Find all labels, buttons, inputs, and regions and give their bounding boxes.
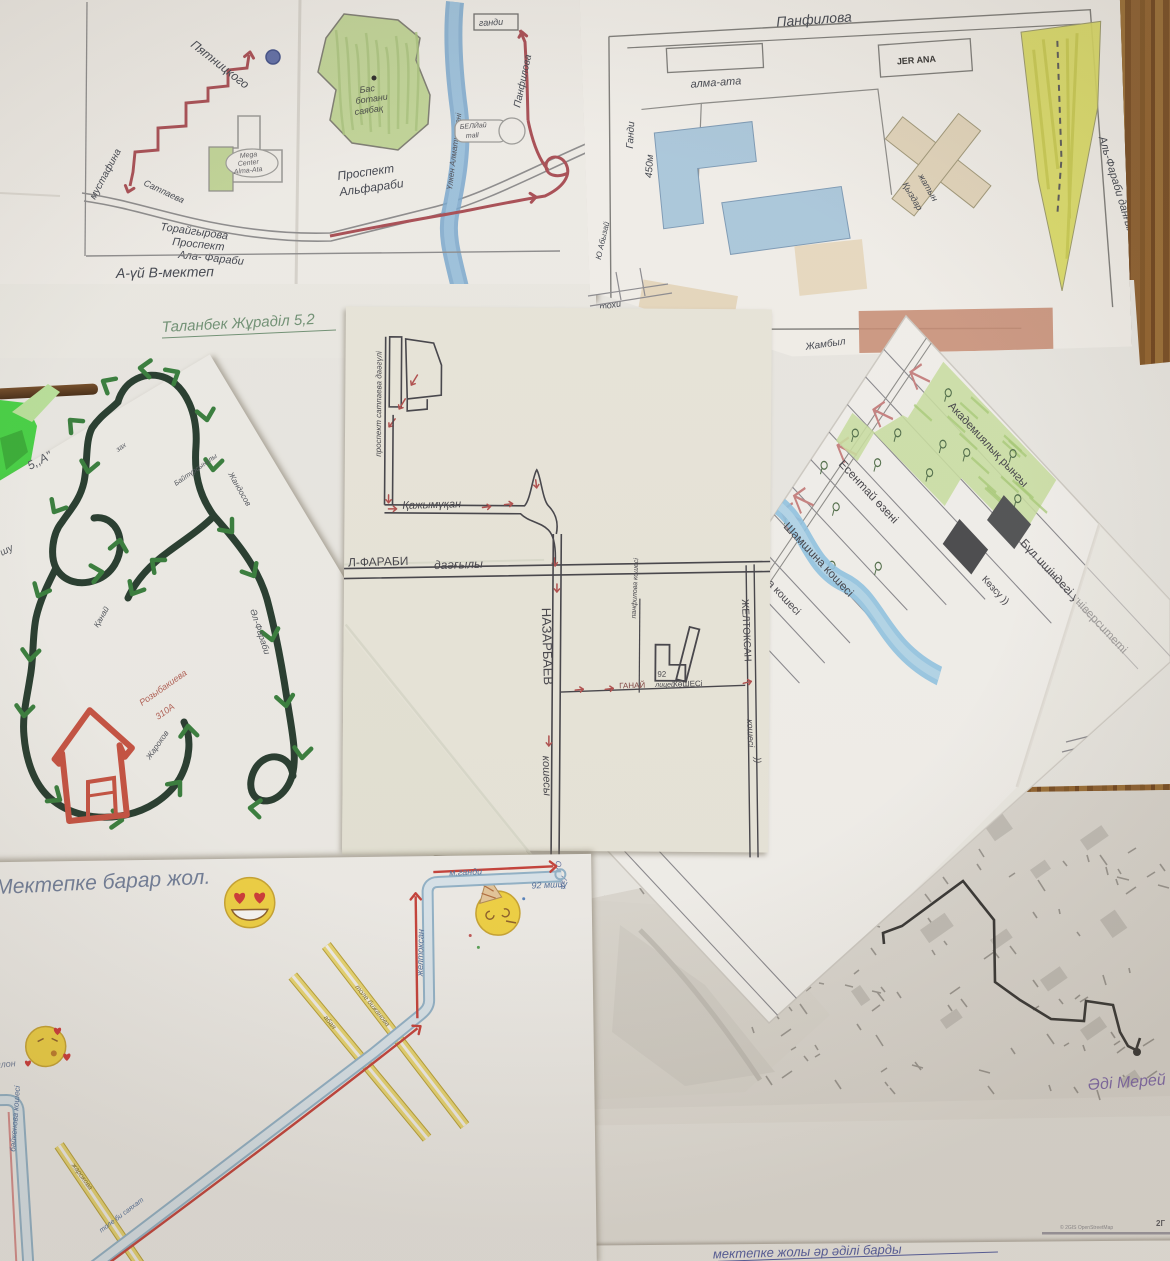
svg-text:илон: илон: [0, 1058, 16, 1070]
svg-text:Л-ФАРАБИ: Л-ФАРАБИ: [348, 554, 409, 570]
svg-text:панфилова кошесі: панфилова кошесі: [630, 558, 641, 619]
svg-text:желтоксан: желтоксан: [415, 929, 426, 977]
svg-text:92: 92: [657, 670, 667, 679]
svg-text:ГАНАЙ: ГАНАЙ: [619, 681, 645, 691]
svg-text:Қажымүқан: Қажымүқан: [402, 498, 461, 512]
svg-text:Мектепке барар жол.: Мектепке барар жол.: [0, 866, 211, 899]
svg-text:КөШЕСі: КөШЕСі: [673, 679, 703, 689]
svg-text:)): )): [753, 756, 763, 763]
svg-text:кошесі: кошесі: [745, 719, 756, 749]
svg-text:толе бижанова: толе бижанова: [353, 983, 391, 1028]
svg-text:НАЗАРБАЕВ: НАЗАРБАЕВ: [539, 608, 556, 686]
svg-text:92 мшцу: 92 мшцу: [531, 879, 568, 891]
svg-text:ЖЕЛТОКСАН: ЖЕЛТОКСАН: [739, 599, 753, 662]
svg-text:даәғылы: даәғылы: [434, 557, 483, 572]
svg-text:сі: сі: [40, 548, 48, 558]
svg-text:кошесы: кошесы: [540, 756, 553, 796]
svg-text:проспект сатпаева даәгүлі: проспект сатпаева даәгүлі: [374, 351, 384, 457]
svg-text:м.ганди: м.ганди: [449, 866, 482, 878]
